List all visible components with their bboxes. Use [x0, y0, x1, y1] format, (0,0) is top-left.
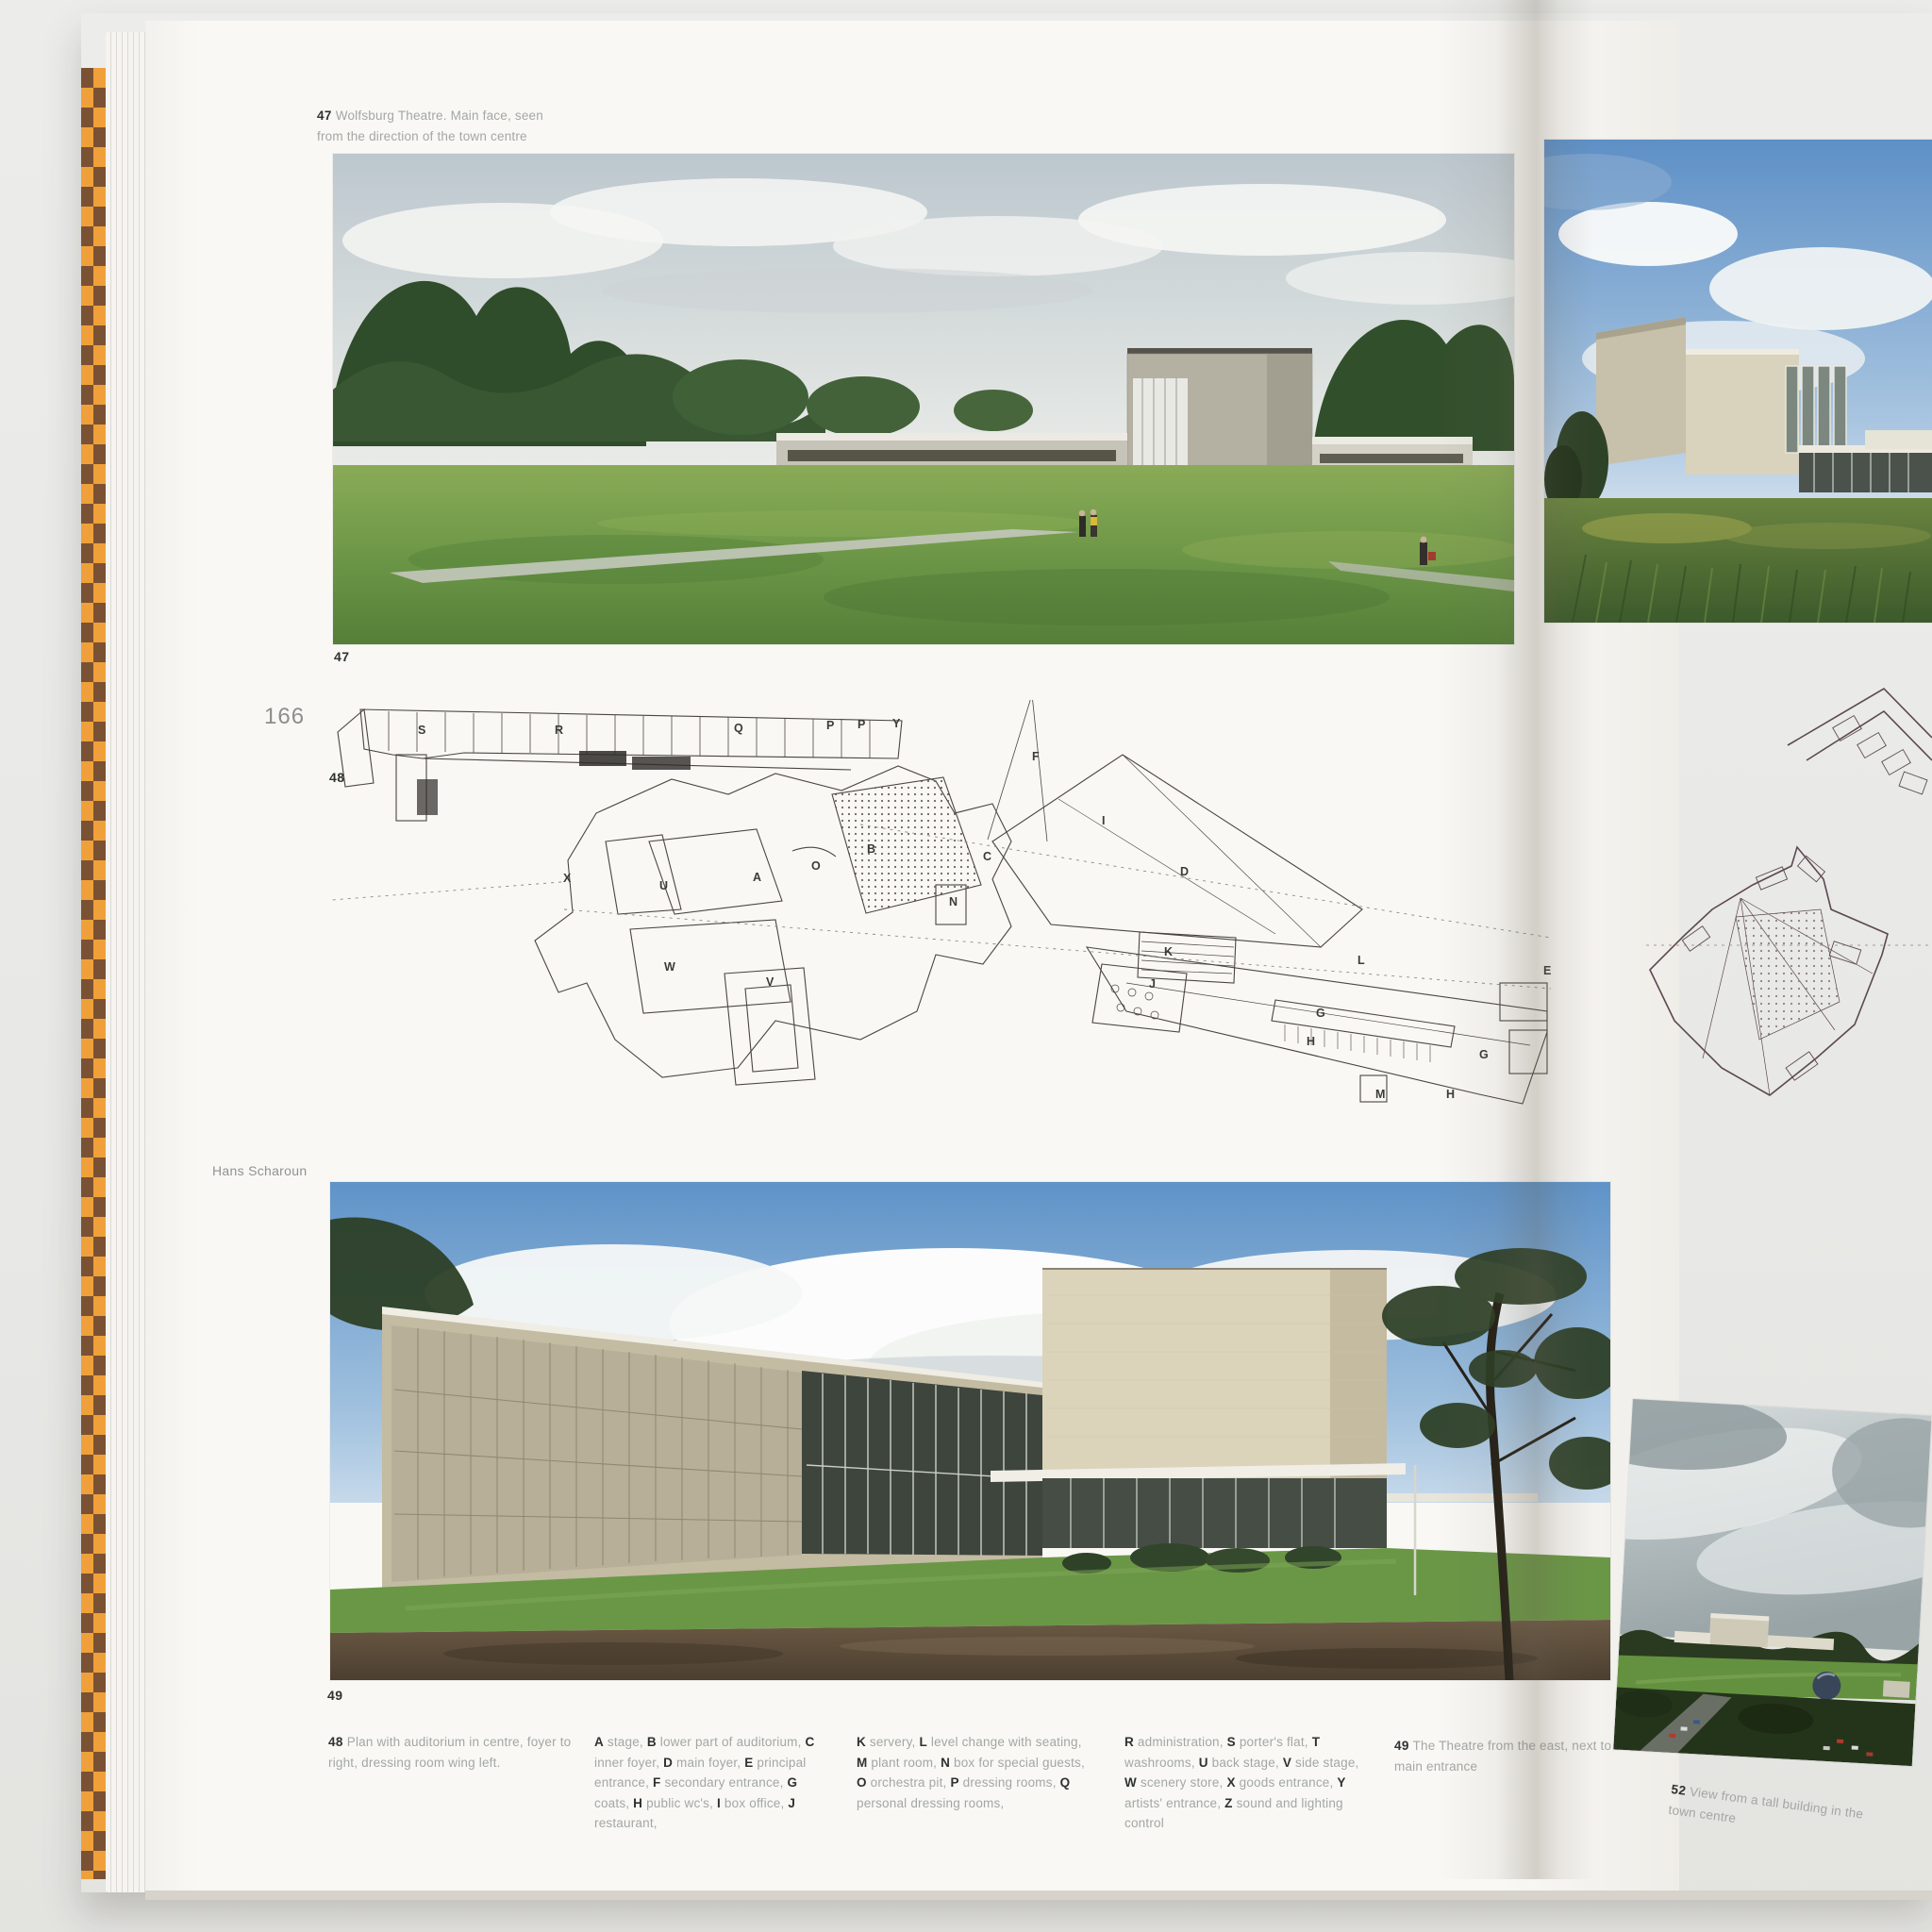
plan-letter-M: M: [1375, 1088, 1385, 1101]
legend-key: M: [857, 1756, 867, 1770]
legend-text: personal dressing rooms,: [857, 1796, 1004, 1810]
legend-text: coats,: [594, 1796, 633, 1810]
legend-text: side stage,: [1291, 1756, 1358, 1770]
caption-fig48-text: Plan with auditorium in centre, foyer to…: [328, 1735, 571, 1770]
legend-key: A: [594, 1735, 604, 1749]
legend-text: restaurant,: [594, 1816, 658, 1830]
legend-key: H: [633, 1796, 642, 1810]
legend-key: Z: [1224, 1796, 1232, 1810]
legend-text: servery,: [866, 1735, 920, 1749]
plan-letter-U: U: [659, 879, 668, 892]
plan-letter-E: E: [1543, 964, 1551, 977]
legend-text: box office,: [721, 1796, 788, 1810]
legend-text: public wc's,: [642, 1796, 717, 1810]
legend-text: inner foyer,: [594, 1756, 663, 1770]
legend-key: B: [647, 1735, 657, 1749]
legend-key: U: [1199, 1756, 1208, 1770]
photo-right-page-bottom-wrap: [1613, 1399, 1931, 1766]
legend-key: Y: [1337, 1775, 1345, 1790]
legend-text: washrooms,: [1124, 1756, 1199, 1770]
figure-number-49: 49: [327, 1688, 343, 1703]
plan-letter-Y: Y: [892, 717, 901, 730]
cover-checker-edge: [81, 68, 106, 1879]
caption-fig49-text: The Theatre from the east, next to the m…: [1394, 1739, 1634, 1774]
plan-letter-Q: Q: [734, 722, 743, 735]
legend-text: secondary entrance,: [661, 1775, 788, 1790]
legend-column-1: A stage, B lower part of auditorium, C i…: [594, 1732, 832, 1834]
figure-number-47: 47: [334, 649, 350, 664]
plan-letter-O: O: [811, 859, 821, 873]
plan-letter-L: L: [1357, 954, 1365, 967]
floor-plan-fig48: SRQPPYXUAOBNWVCFIDKJLEGHGMH: [332, 700, 1558, 1106]
legend-key: C: [806, 1735, 815, 1749]
plan-letter-P: P: [858, 718, 865, 731]
plan-letter-F: F: [1032, 750, 1040, 763]
legend-text: lower part of auditorium,: [657, 1735, 806, 1749]
legend-text: plant room,: [867, 1756, 941, 1770]
legend-text: dressing rooms,: [959, 1775, 1060, 1790]
caption-fig47-number: 47: [317, 108, 332, 123]
caption-fig48: 48 Plan with auditorium in centre, foyer…: [328, 1732, 579, 1773]
book-spread-photo: 47 Wolfsburg Theatre. Main face, seen fr…: [0, 0, 1932, 1932]
legend-column-3: R administration, S porter's flat, T was…: [1124, 1732, 1374, 1834]
legend-key: D: [663, 1756, 673, 1770]
plan-letter-X: X: [563, 872, 572, 885]
legend-key: J: [788, 1796, 795, 1810]
legend-text: main foyer,: [673, 1756, 744, 1770]
plan-room-letters: SRQPPYXUAOBNWVCFIDKJLEGHGMH: [418, 717, 1551, 1101]
legend-key: F: [653, 1775, 660, 1790]
legend-text: scenery store,: [1137, 1775, 1227, 1790]
photo-right-page-top: [1544, 140, 1932, 623]
book-bottom-edge: [145, 1890, 1932, 1900]
plan-letter-S: S: [418, 724, 425, 737]
legend-text: box for special guests,: [950, 1756, 1085, 1770]
legend-text: level change with seating,: [927, 1735, 1082, 1749]
legend-key: Q: [1060, 1775, 1071, 1790]
caption-fig48-number: 48: [328, 1735, 343, 1749]
plan-letter-G: G: [1316, 1007, 1325, 1020]
page-number: 166: [264, 704, 305, 730]
legend-key: T: [1312, 1735, 1320, 1749]
legend-key: P: [950, 1775, 958, 1790]
caption-fig52-number: 52: [1671, 1782, 1688, 1798]
plan-letter-C: C: [983, 850, 991, 863]
photo-fig52-aerial-view: [1613, 1399, 1931, 1766]
floor-plan-right-page: [1646, 662, 1932, 1115]
legend-key: L: [919, 1735, 926, 1749]
legend-text: orchestra pit,: [867, 1775, 951, 1790]
photo-fig47-theatre-from-town: [333, 154, 1514, 644]
photo-fig49-theatre-east: [330, 1182, 1610, 1680]
legend-key: G: [788, 1775, 798, 1790]
plan-letter-R: R: [555, 724, 563, 737]
plan-letter-I: I: [1102, 814, 1105, 827]
legend-text: administration,: [1134, 1735, 1227, 1749]
plan-letter-N: N: [949, 895, 958, 908]
plan-letter-D: D: [1180, 865, 1189, 878]
legend-column-2: K servery, L level change with seating, …: [857, 1732, 1096, 1813]
legend-key: V: [1283, 1756, 1291, 1770]
plan-letter-V: V: [766, 975, 774, 989]
plan-letter-P: P: [826, 719, 834, 732]
legend-text: porter's flat,: [1236, 1735, 1312, 1749]
caption-fig49-number: 49: [1394, 1739, 1409, 1753]
caption-fig47: 47 Wolfsburg Theatre. Main face, seen fr…: [317, 106, 564, 146]
legend-text: stage,: [604, 1735, 647, 1749]
plan-letter-B: B: [867, 842, 875, 856]
legend-text: goods entrance,: [1236, 1775, 1338, 1790]
legend-text: back stage,: [1208, 1756, 1283, 1770]
legend-key: W: [1124, 1775, 1137, 1790]
legend-key: K: [857, 1735, 866, 1749]
plan-letter-K: K: [1164, 945, 1173, 958]
caption-fig47-text: Wolfsburg Theatre. Main face, seen from …: [317, 108, 543, 143]
legend-key: N: [941, 1756, 950, 1770]
legend-key: O: [857, 1775, 867, 1790]
legend-key: R: [1124, 1735, 1134, 1749]
legend-key: S: [1227, 1735, 1236, 1749]
plan-letter-W: W: [664, 960, 675, 974]
plan-letter-G: G: [1479, 1048, 1489, 1061]
legend-key: X: [1226, 1775, 1235, 1790]
plan-letter-A: A: [753, 871, 761, 884]
plan-letter-H: H: [1446, 1088, 1455, 1101]
plan-letter-H: H: [1307, 1035, 1315, 1048]
author-name: Hans Scharoun: [212, 1163, 307, 1178]
page-stack-edge: [106, 32, 145, 1892]
legend-text: artists' entrance,: [1124, 1796, 1224, 1810]
plan-letter-J: J: [1149, 977, 1156, 991]
